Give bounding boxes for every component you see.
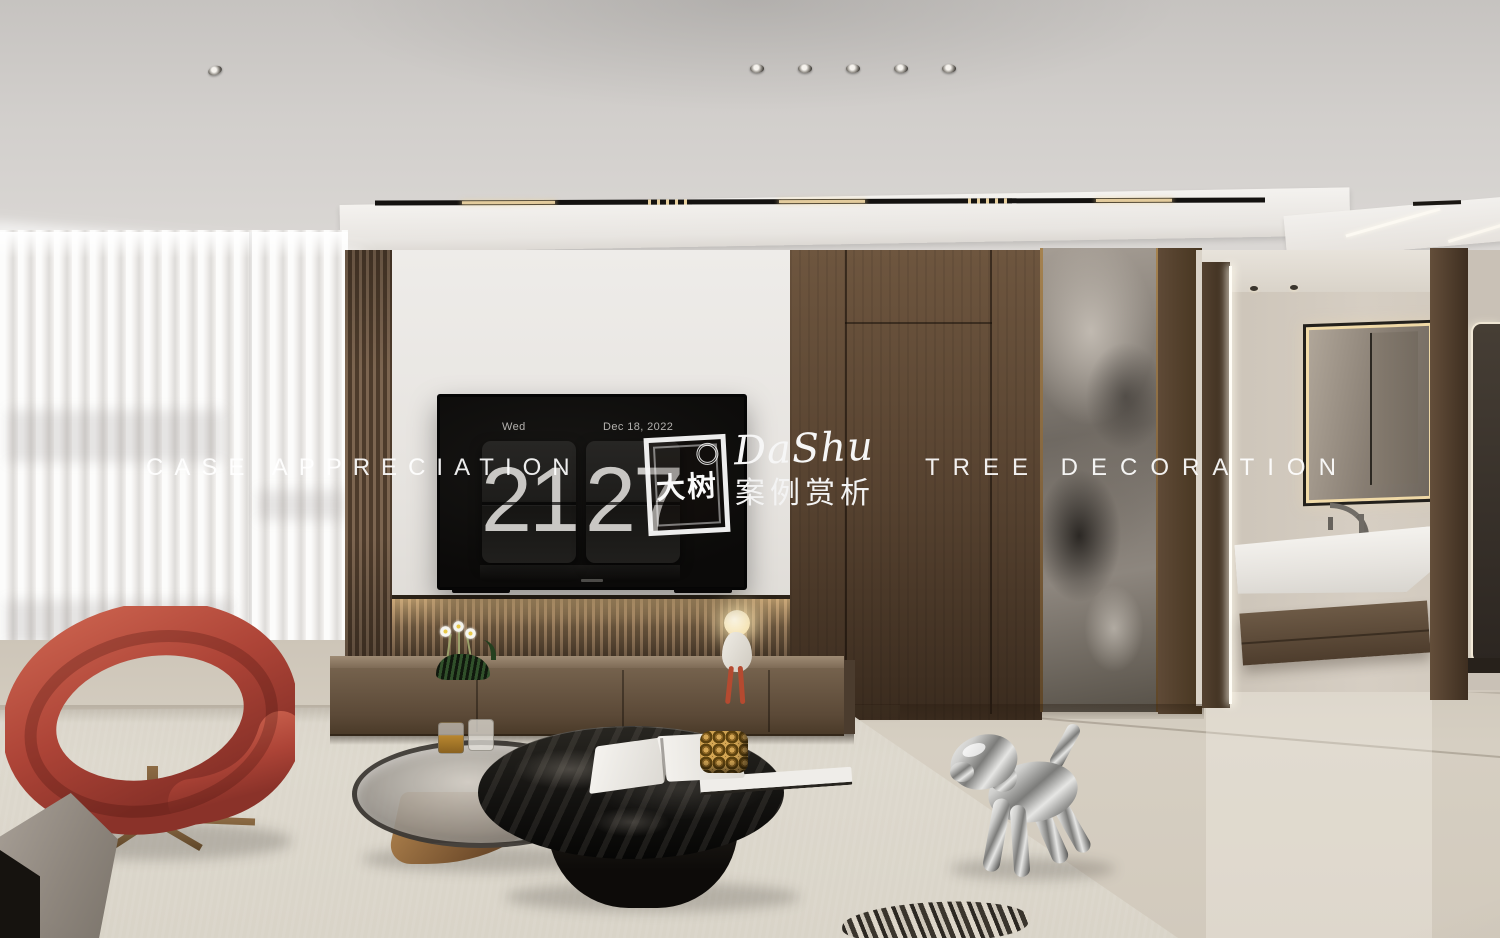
full-length-mirror [1471,322,1500,664]
bathroom-spotlight [1250,286,1258,291]
curtain-top-glow [0,232,348,258]
window-mullion-shadow [258,490,344,520]
brand-script-logo: DaShu [733,424,874,475]
watermark-left: CASE APPRECIATION [146,454,581,482]
bathroom-floor [1206,682,1432,938]
figurine-leg [738,666,746,704]
dog-leg [982,797,1012,873]
seal-characters: 大树 [655,462,719,507]
dog-muzzle [950,762,974,782]
ceiling-spotlight [750,64,764,73]
daisy-flower [440,626,451,637]
cabinet-seam [622,670,624,732]
ceiling-spotlight [846,64,860,73]
gold-bead-sculpture [700,731,748,773]
clock-reflection [480,565,680,581]
cat-vase-tail [479,640,496,660]
clock-day-label: Wed [502,421,526,433]
balloon-dog-sculpture [940,712,1108,884]
drinking-glass [468,719,494,751]
figurine-lamp [716,610,760,706]
drinking-glass [438,722,464,754]
daisy-flower [453,621,464,632]
concealed-door-seam [990,250,992,714]
mirror-shadow [1468,658,1500,673]
tv-foot [452,588,510,593]
ceiling-spotlight [942,64,956,73]
bathroom-door-panel [1202,262,1230,708]
cabinet-front [330,668,844,736]
wood-column [1430,248,1468,700]
watermark-right: TREE DECORATION [925,454,1349,482]
cat-vase [434,630,494,680]
brand-subtitle: 案例赏析 [735,468,875,512]
daisy-flower [465,628,476,639]
cabinet-seam [768,670,770,732]
bathroom-spotlight [1290,285,1298,290]
concealed-door-seam [845,322,992,324]
figurine-leg [725,666,734,704]
led-strip-light [1229,266,1232,704]
mirror-reflection [1370,331,1418,485]
brand-seal: 大树 [643,434,730,536]
ceiling-spotlight [798,64,812,73]
tv-cabinet [330,656,844,736]
clock-date-label: Dec 18, 2022 [603,421,673,433]
tv-brand-mark [581,579,603,582]
figurine-body [722,632,752,672]
ceiling-spotlight [894,64,908,73]
tv-foot [674,588,732,593]
interior-render: Wed Dec 18, 2022 21 27 [0,0,1500,938]
faucet-spout [1328,517,1333,530]
cabinet-top-face [330,656,844,668]
drawer-seam [1241,629,1429,644]
cabinet-side-face [844,660,855,734]
